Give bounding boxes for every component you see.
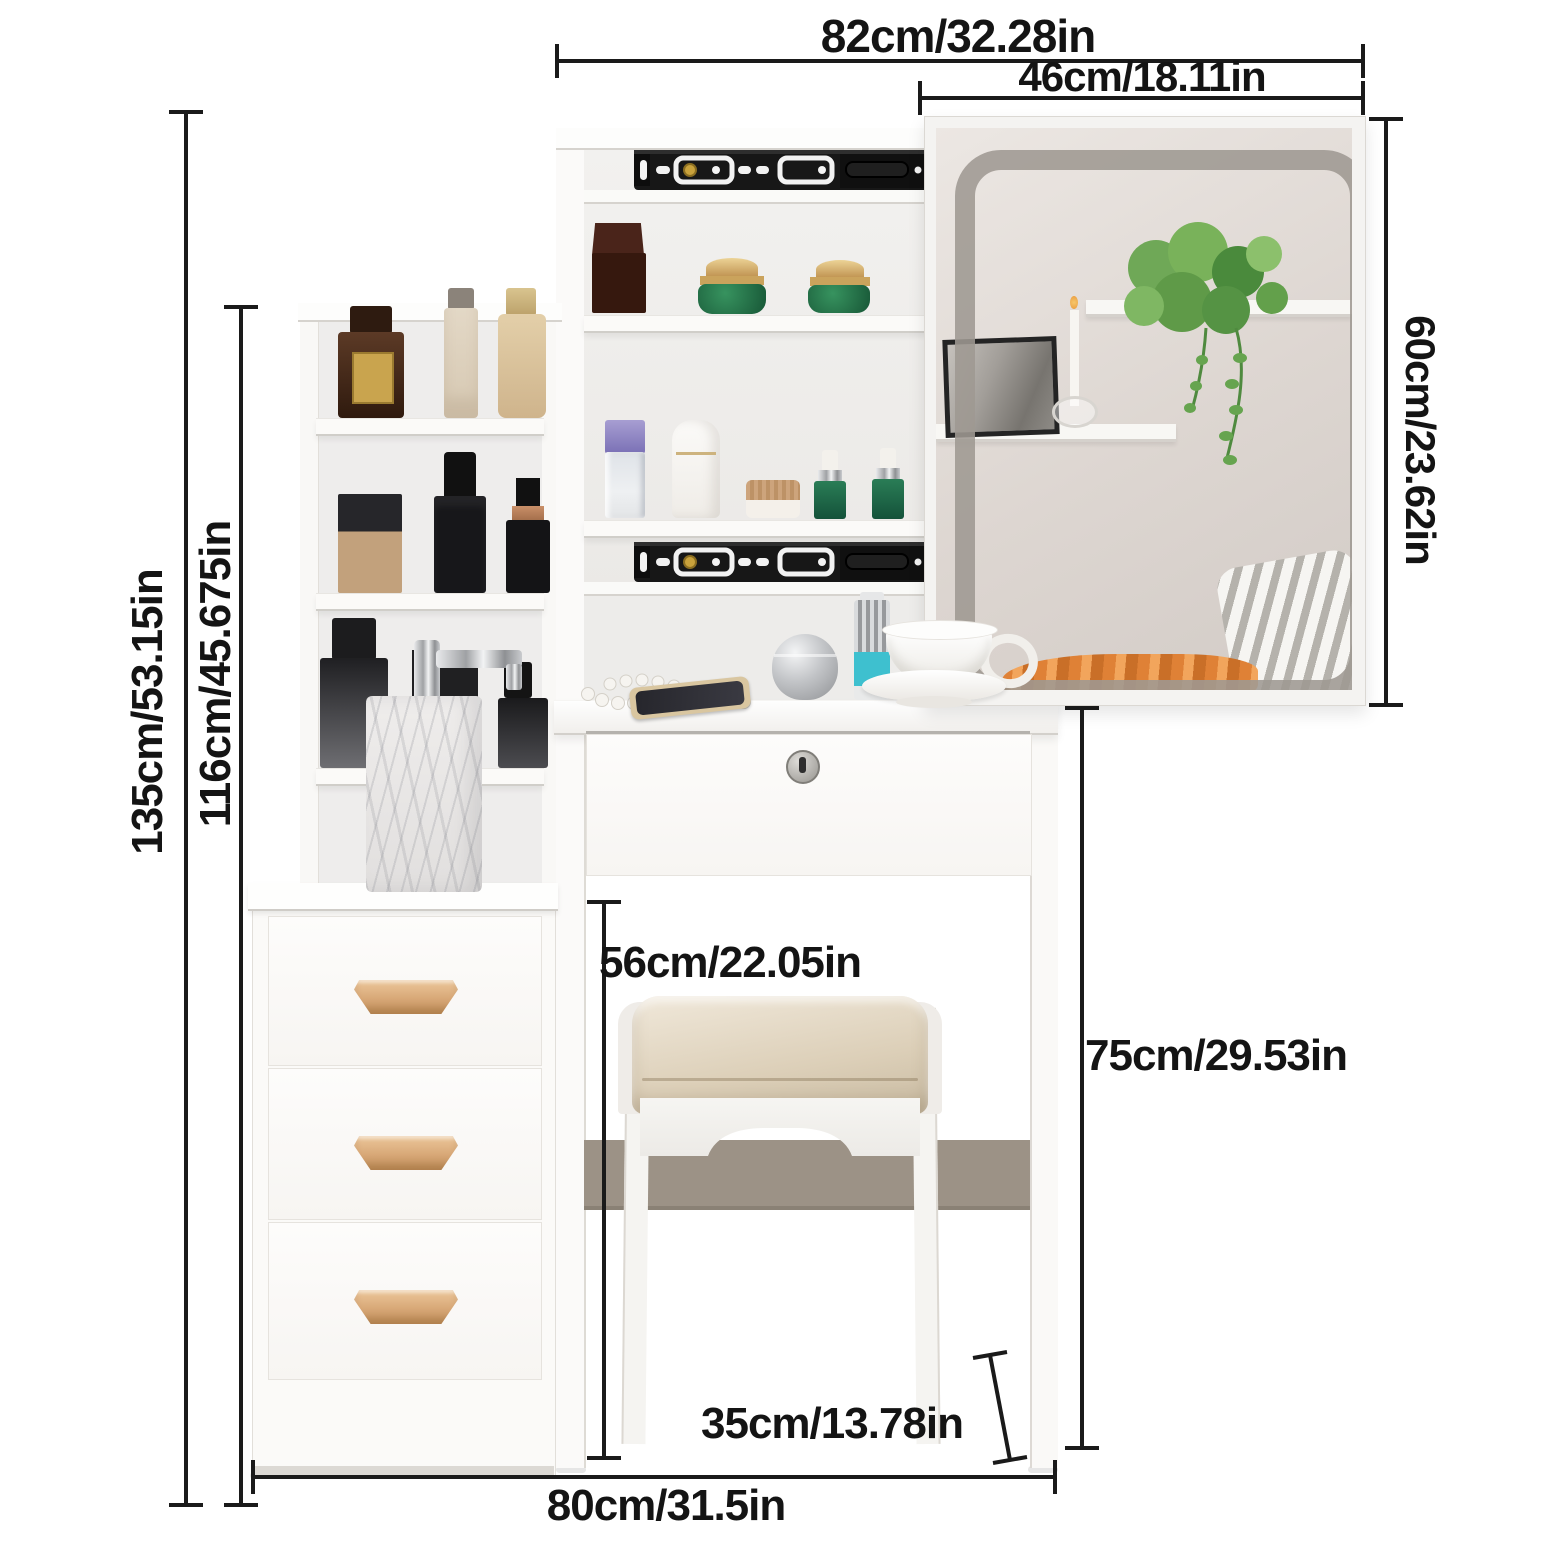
dimension-label-table-height: 75cm/29.53in (1085, 1031, 1347, 1081)
dimension-label-stool-width: 35cm/13.78in (701, 1399, 963, 1449)
dimension-label-mirror-height: 60cm/23.62in (1396, 315, 1444, 565)
dimension-label-mirror-width: 46cm/18.11in (1018, 53, 1265, 101)
dimension-label-base-width: 80cm/31.5in (547, 1481, 786, 1531)
product-dimension-diagram: 82cm/32.28in 46cm/18.11in 60cm/23.62in 1… (0, 0, 1559, 1559)
dimension-label-hutch-height: 116cm/45.675in (191, 521, 241, 827)
dimension-label-total-height: 135cm/53.15in (123, 569, 173, 854)
dimension-label-stool-seat-height: 56cm/22.05in (599, 938, 861, 988)
